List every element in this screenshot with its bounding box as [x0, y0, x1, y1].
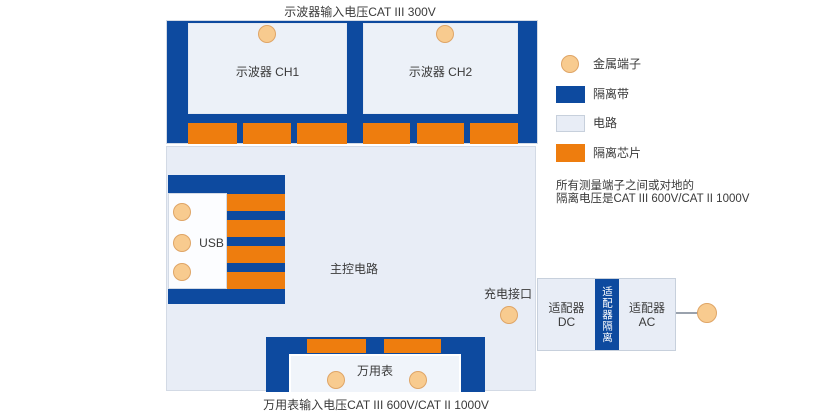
ch1-metal-terminal-icon	[258, 25, 276, 43]
adapter-ac-label-line1: 适配器	[629, 301, 665, 315]
oscilloscope-section: 示波器 CH1 示波器 CH2	[166, 20, 538, 144]
isolation-chip	[297, 123, 347, 144]
isolation-band	[266, 337, 289, 392]
scope-input-voltage-caption: 示波器输入电压CAT III 300V	[250, 5, 470, 19]
isolation-architecture-diagram: 示波器输入电压CAT III 300V 示波器 CH1 示波器 CH2 USB	[0, 0, 840, 420]
multimeter-metal-terminal-icon	[327, 371, 345, 389]
legend-isolation-chip-swatch	[556, 144, 585, 162]
multimeter-metal-terminal-icon	[409, 371, 427, 389]
usb-metal-terminal-icon	[173, 234, 191, 252]
legend-isolation-band-swatch	[556, 86, 585, 103]
usb-circuit: USB	[168, 193, 227, 289]
adapter-dc-label-line1: 适配器	[548, 301, 584, 315]
isolation-chip	[384, 339, 441, 353]
note-line-1: 所有测量端子之间或对地的	[556, 180, 806, 193]
isolation-voltage-note: 所有测量端子之间或对地的 隔离电压是CAT III 600V/CAT II 10…	[556, 180, 806, 205]
multimeter-input-voltage-caption: 万用表输入电压CAT III 600V/CAT II 1000V	[256, 398, 496, 412]
adapter-ac-section: 适配器 AC	[619, 279, 675, 350]
main-control-section: USB 主控电路 充电接口 万用表	[166, 146, 536, 391]
multimeter-circuit: 万用表	[289, 354, 461, 392]
adapter-connector-line	[676, 312, 698, 314]
isolation-chip	[417, 123, 464, 144]
isolation-chip	[227, 220, 285, 237]
adapter-dc-section: 适配器 DC	[538, 279, 595, 350]
multimeter-isolation-strip	[289, 337, 461, 354]
note-line-2: 隔离电压是CAT III 600V/CAT II 1000V	[556, 193, 806, 206]
multimeter-label: 万用表	[291, 364, 459, 378]
adapter-dc-label-line2: DC	[558, 315, 575, 329]
scope-ch1-label: 示波器 CH1	[189, 65, 346, 79]
legend-circuit-swatch	[556, 115, 585, 132]
usb-isolation-assembly: USB	[168, 175, 285, 304]
isolation-chip	[227, 246, 285, 263]
isolation-chip	[243, 123, 291, 144]
adapter-ac-label-line2: AC	[639, 315, 656, 329]
adapter-block: 适配器 DC 适配器隔离 适配器 AC	[537, 278, 676, 351]
ch2-metal-terminal-icon	[436, 25, 454, 43]
adapter-isolation-label: 适配器隔离	[595, 286, 619, 344]
isolation-chip	[307, 339, 366, 353]
legend-label-metal-terminal: 金属端子	[593, 57, 641, 71]
legend-label-circuit: 电路	[593, 116, 617, 130]
usb-label: USB	[195, 236, 228, 250]
legend-label-isolation-band: 隔离带	[593, 87, 629, 101]
adapter-metal-terminal-icon	[697, 303, 717, 323]
isolation-chip	[470, 123, 518, 144]
isolation-chip	[363, 123, 410, 144]
isolation-chip	[227, 194, 285, 211]
charge-port-terminal-icon	[500, 306, 518, 324]
adapter-isolation-band: 适配器隔离	[595, 279, 619, 350]
scope-ch2-label: 示波器 CH2	[364, 65, 517, 79]
legend-metal-terminal-icon	[561, 55, 579, 73]
usb-metal-terminal-icon	[173, 263, 191, 281]
isolation-band	[461, 337, 485, 392]
usb-metal-terminal-icon	[173, 203, 191, 221]
main-controller-label: 主控电路	[274, 262, 434, 276]
legend-label-isolation-chip: 隔离芯片	[593, 146, 641, 160]
isolation-chip	[188, 123, 237, 144]
